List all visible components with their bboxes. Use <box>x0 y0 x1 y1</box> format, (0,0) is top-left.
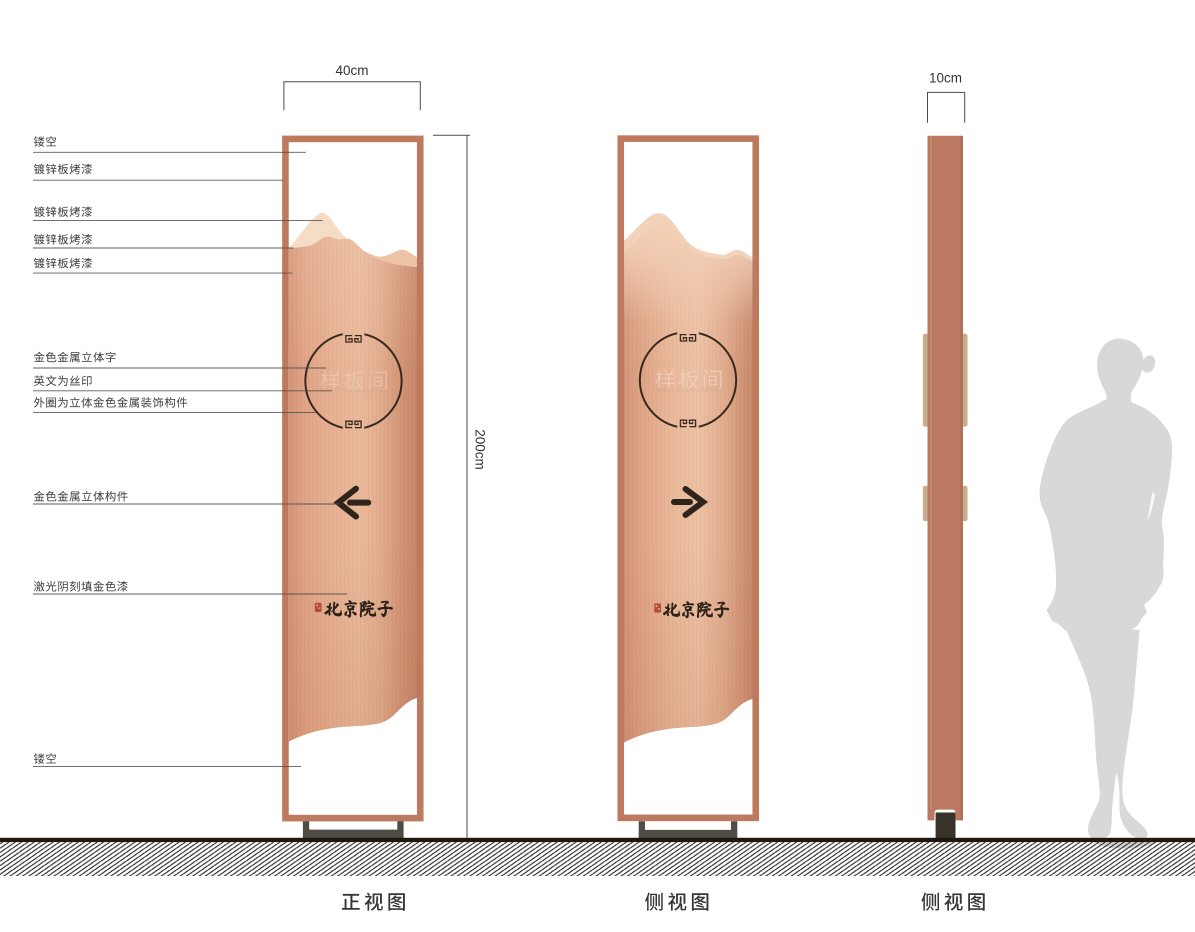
svg-text:MODEL ROOM DISPLAY: MODEL ROOM DISPLAY <box>654 388 722 394</box>
svg-text:200cm: 200cm <box>473 429 488 470</box>
svg-text:40cm: 40cm <box>335 63 368 78</box>
svg-text:10cm: 10cm <box>929 71 962 86</box>
svg-text:MODEL ROOM DISPLAY: MODEL ROOM DISPLAY <box>320 389 388 395</box>
